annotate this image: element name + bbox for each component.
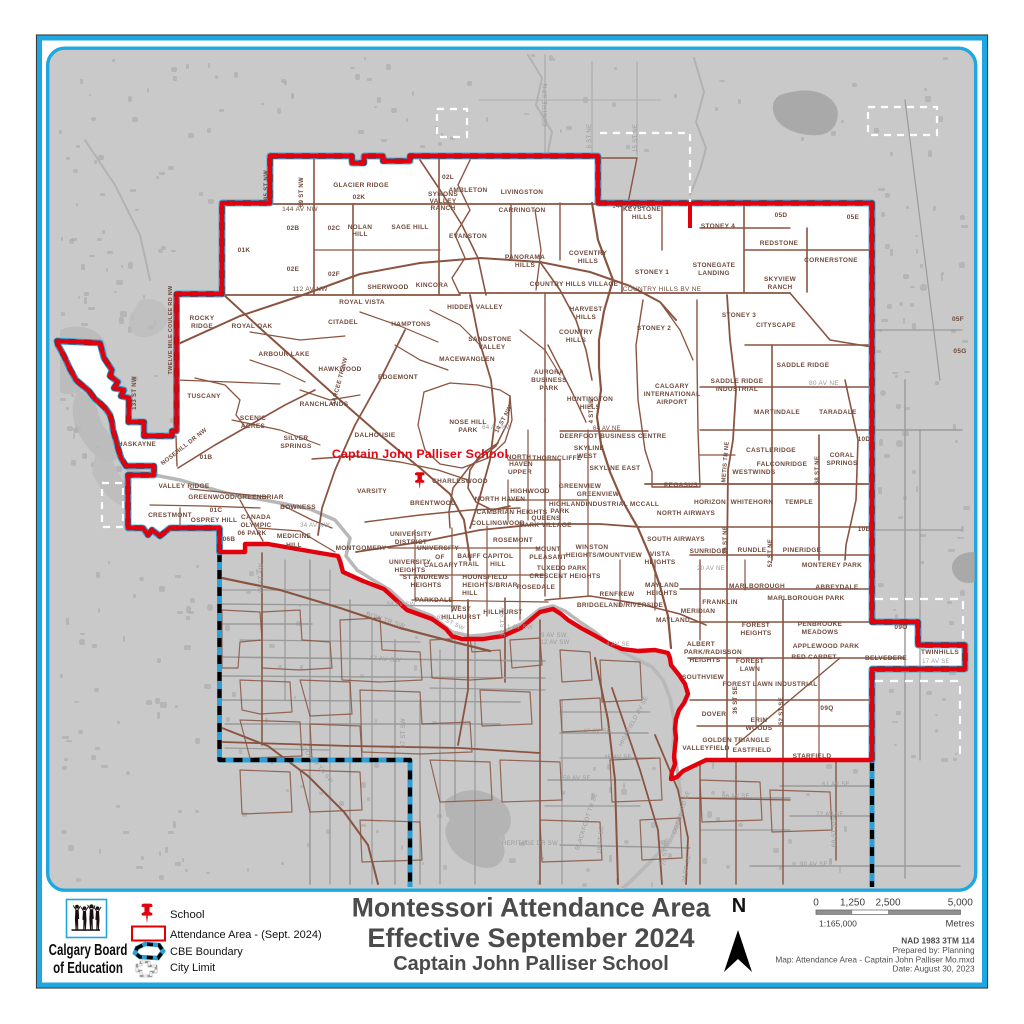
svg-text:6 ST NE: 6 ST NE xyxy=(587,124,593,149)
svg-text:TARADALE: TARADALE xyxy=(819,409,857,416)
svg-text:ROCKY: ROCKY xyxy=(190,315,215,322)
svg-text:PARKDALE: PARKDALE xyxy=(415,597,453,604)
svg-text:Effective September 2024: Effective September 2024 xyxy=(367,923,694,953)
svg-text:MACEWANGLEN: MACEWANGLEN xyxy=(439,356,495,363)
svg-text:72 AV SE: 72 AV SE xyxy=(816,812,844,818)
svg-text:VISTA: VISTA xyxy=(650,551,670,558)
svg-text:HIGHLANDINDUSTRIAL MCCALL: HIGHLANDINDUSTRIAL MCCALL xyxy=(549,501,659,508)
svg-text:Attendance Area - (Sept. 2024): Attendance Area - (Sept. 2024) xyxy=(170,929,322,941)
svg-text:HIGHWOOD: HIGHWOOD xyxy=(510,488,550,495)
svg-text:SILVER: SILVER xyxy=(284,435,309,442)
svg-text:ARBOUR LAKE: ARBOUR LAKE xyxy=(258,351,310,358)
svg-text:CARRINGTON: CARRINGTON xyxy=(499,207,546,214)
svg-text:34 AV SW: 34 AV SW xyxy=(386,602,415,608)
svg-text:QUEENS: QUEENS xyxy=(531,515,561,522)
svg-text:OF: OF xyxy=(435,554,445,561)
svg-text:85 ST NW: 85 ST NW xyxy=(264,170,270,200)
svg-text:TUXEDO PARK: TUXEDO PARK xyxy=(537,565,587,572)
svg-text:HILLS: HILLS xyxy=(632,214,653,221)
svg-text:NORTH HAVEN: NORTH HAVEN xyxy=(475,496,526,503)
svg-text:School: School xyxy=(170,909,205,921)
svg-text:CAPITOL: CAPITOL xyxy=(483,553,514,560)
svg-text:PLEASANT: PLEASANT xyxy=(529,554,566,561)
svg-text:RUNDLE: RUNDLE xyxy=(738,547,767,554)
svg-text:CBE Boundary: CBE Boundary xyxy=(170,946,243,958)
svg-text:02B: 02B xyxy=(287,225,300,232)
svg-text:ROSEMONT: ROSEMONT xyxy=(493,537,533,544)
svg-text:09Q: 09Q xyxy=(820,705,833,712)
svg-text:LANDING: LANDING xyxy=(698,270,730,277)
svg-text:Calgary Board: Calgary Board xyxy=(49,940,128,958)
svg-text:N: N xyxy=(732,895,746,917)
svg-text:10D: 10D xyxy=(858,436,871,443)
svg-text:ST ANDREWS: ST ANDREWS xyxy=(403,574,450,581)
svg-text:THORNCLIFFE: THORNCLIFFE xyxy=(532,455,582,462)
svg-text:MAYLAND: MAYLAND xyxy=(656,617,690,624)
svg-text:SCENIC: SCENIC xyxy=(240,415,266,422)
svg-text:TWINHILLS: TWINHILLS xyxy=(921,649,959,656)
svg-text:MOUNT: MOUNT xyxy=(535,546,560,553)
svg-text:STARFIELD: STARFIELD xyxy=(793,753,832,760)
svg-text:SADDLE RIDGE: SADDLE RIDGE xyxy=(777,362,830,369)
svg-text:MERIDIAN: MERIDIAN xyxy=(681,608,716,615)
svg-text:Captain John Palliser School: Captain John Palliser School xyxy=(393,953,669,975)
svg-text:TEMPLE: TEMPLE xyxy=(785,499,814,506)
svg-text:HILL: HILL xyxy=(462,590,478,597)
svg-text:HERITAGE DR SW: HERITAGE DR SW xyxy=(502,841,558,847)
svg-text:HILL: HILL xyxy=(490,561,506,568)
svg-text:MAYLAND: MAYLAND xyxy=(645,582,679,589)
svg-text:HILLS: HILLS xyxy=(515,262,536,269)
svg-text:CHARLESWOOD: CHARLESWOOD xyxy=(432,478,488,485)
svg-text:CORAL: CORAL xyxy=(830,452,855,459)
svg-text:NOLAN: NOLAN xyxy=(348,224,373,231)
svg-text:ACRES: ACRES xyxy=(241,423,266,430)
svg-text:20 AV NE: 20 AV NE xyxy=(697,566,725,572)
svg-text:WOODS: WOODS xyxy=(746,725,773,732)
svg-text:OLYMPIC: OLYMPIC xyxy=(240,522,271,529)
svg-text:VARSITY: VARSITY xyxy=(357,488,387,495)
svg-text:SOUTH AIRWAYS: SOUTH AIRWAYS xyxy=(647,536,705,543)
svg-text:INTERNATIONAL: INTERNATIONAL xyxy=(644,391,701,398)
svg-text:CITYSCAPE: CITYSCAPE xyxy=(756,322,796,329)
svg-text:RENFREW: RENFREW xyxy=(600,591,636,598)
svg-text:SOUTHVIEW: SOUTHVIEW xyxy=(682,674,725,681)
svg-text:TUSCANY: TUSCANY xyxy=(187,393,221,400)
svg-text:4 AV SE: 4 AV SE xyxy=(606,642,630,648)
svg-text:BUSINESS: BUSINESS xyxy=(531,377,567,384)
svg-text:INDUSTRIAL: INDUSTRIAL xyxy=(716,386,758,393)
svg-text:1 AV SW: 1 AV SW xyxy=(507,625,533,631)
svg-text:NORTH: NORTH xyxy=(507,454,532,461)
svg-text:06 PARK: 06 PARK xyxy=(237,530,266,537)
svg-text:PARK: PARK xyxy=(458,427,477,434)
svg-text:GLACIER RIDGE: GLACIER RIDGE xyxy=(333,182,389,189)
svg-text:KINCORA: KINCORA xyxy=(416,282,448,289)
svg-text:BOWNESS: BOWNESS xyxy=(280,504,316,511)
svg-text:UNIVERSITY: UNIVERSITY xyxy=(390,531,432,538)
svg-text:VALLEYFIELD: VALLEYFIELD xyxy=(682,745,729,752)
svg-text:LAWN: LAWN xyxy=(740,666,760,673)
svg-text:GOLDEN TRIANGLE: GOLDEN TRIANGLE xyxy=(702,737,770,744)
svg-text:CRESCENT HEIGHTS: CRESCENT HEIGHTS xyxy=(529,573,601,580)
svg-text:CASTLERIDGE: CASTLERIDGE xyxy=(746,447,796,454)
svg-text:EASTFIELD: EASTFIELD xyxy=(733,747,772,754)
svg-text:HEIGHTS: HEIGHTS xyxy=(411,582,442,589)
svg-text:COVENTRY: COVENTRY xyxy=(569,250,608,257)
svg-text:STONEY 1: STONEY 1 xyxy=(635,269,669,276)
svg-text:PINERIDGE: PINERIDGE xyxy=(783,547,822,554)
svg-text:9 AV SW: 9 AV SW xyxy=(541,633,567,639)
svg-text:FRANKLIN: FRANKLIN xyxy=(702,599,738,606)
svg-text:UNIVERSITY: UNIVERSITY xyxy=(417,545,459,552)
svg-text:HILL: HILL xyxy=(286,542,302,549)
svg-text:CORNERSTONE: CORNERSTONE xyxy=(804,257,858,264)
svg-text:HILLS: HILLS xyxy=(576,314,597,321)
svg-text:68 ST SE: 68 ST SE xyxy=(832,819,838,847)
svg-text:RANCH: RANCH xyxy=(768,284,793,291)
svg-text:PANORAMA: PANORAMA xyxy=(505,254,545,261)
svg-text:61 AV SE: 61 AV SE xyxy=(822,782,850,788)
svg-text:STONEY 3: STONEY 3 xyxy=(722,312,756,319)
svg-text:HORIZON: HORIZON xyxy=(694,499,726,506)
svg-text:RANCHLANDS: RANCHLANDS xyxy=(300,401,349,408)
svg-text:01C: 01C xyxy=(210,507,223,514)
svg-text:City Limit: City Limit xyxy=(170,962,215,974)
svg-text:37 ST SW: 37 ST SW xyxy=(501,607,507,637)
svg-text:SUNRIDGE: SUNRIDGE xyxy=(690,548,727,555)
svg-text:NOSE HILL: NOSE HILL xyxy=(449,419,486,426)
svg-text:01B: 01B xyxy=(200,454,213,461)
svg-text:Date: August 30, 2023: Date: August 30, 2023 xyxy=(892,964,974,974)
svg-text:ABBEYDALE: ABBEYDALE xyxy=(815,584,859,591)
svg-text:ROYAL OAK: ROYAL OAK xyxy=(232,323,273,330)
svg-text:STONEGATE: STONEGATE xyxy=(693,262,736,269)
svg-text:UNIVERSITY: UNIVERSITY xyxy=(389,559,431,566)
svg-text:MEADOWS: MEADOWS xyxy=(802,629,839,636)
svg-text:HEIGHTS: HEIGHTS xyxy=(395,567,426,574)
svg-text:Captain John Palliser School: Captain John Palliser School xyxy=(332,447,508,461)
svg-text:SADDLE RIDGE: SADDLE RIDGE xyxy=(711,378,764,385)
svg-text:GREENVIEW: GREENVIEW xyxy=(559,483,602,490)
svg-text:VALLEY: VALLEY xyxy=(479,344,506,351)
svg-text:1:165,000: 1:165,000 xyxy=(819,919,857,929)
svg-text:SPRINGS: SPRINGS xyxy=(280,443,312,450)
svg-text:05F: 05F xyxy=(952,316,964,323)
svg-text:05G: 05G xyxy=(953,348,966,355)
svg-text:34 AV NW: 34 AV NW xyxy=(300,523,330,529)
svg-text:HIDDEN VALLEY: HIDDEN VALLEY xyxy=(447,304,503,311)
svg-text:MARLBOROUGH: MARLBOROUGH xyxy=(729,583,785,590)
svg-text:52 ST NE: 52 ST NE xyxy=(768,539,774,567)
svg-text:CENTRE ST N: CENTRE ST N xyxy=(543,83,549,126)
svg-text:02L: 02L xyxy=(442,174,454,181)
svg-text:05E: 05E xyxy=(847,214,860,221)
svg-text:HILLS: HILLS xyxy=(578,258,599,265)
svg-text:HILL: HILL xyxy=(352,231,368,238)
svg-text:DALHOUSIE: DALHOUSIE xyxy=(355,432,396,439)
svg-text:RIDGE: RIDGE xyxy=(191,323,213,330)
svg-text:NORTH AIRWAYS: NORTH AIRWAYS xyxy=(657,510,716,517)
svg-text:58 AV SE: 58 AV SE xyxy=(563,776,591,782)
svg-text:SKYLINE EAST: SKYLINE EAST xyxy=(590,465,641,472)
svg-text:PARK: PARK xyxy=(550,508,569,515)
svg-text:Montessori Attendance Area: Montessori Attendance Area xyxy=(352,893,711,923)
svg-text:CRESTMONT: CRESTMONT xyxy=(148,512,192,519)
svg-text:EDGEMONT: EDGEMONT xyxy=(378,374,418,381)
svg-text:SKYVIEW: SKYVIEW xyxy=(764,276,797,283)
svg-text:NAD 1983 3TM 114: NAD 1983 3TM 114 xyxy=(901,936,975,946)
svg-text:02E: 02E xyxy=(287,266,300,273)
svg-text:1,250: 1,250 xyxy=(840,898,865,909)
svg-text:RED CARPET: RED CARPET xyxy=(791,654,836,661)
svg-text:GREENVIEW: GREENVIEW xyxy=(577,491,620,498)
svg-text:HAVEN: HAVEN xyxy=(509,461,533,468)
svg-text:36 ST SE: 36 ST SE xyxy=(733,686,739,714)
svg-text:COUNTRY HILLS VILLAGE: COUNTRY HILLS VILLAGE xyxy=(530,281,619,288)
svg-text:HEIGHTS: HEIGHTS xyxy=(645,559,676,566)
svg-text:HARVEST: HARVEST xyxy=(569,306,602,313)
svg-text:PARK: PARK xyxy=(539,385,558,392)
svg-text:69 ST NW: 69 ST NW xyxy=(299,177,305,207)
svg-text:BELVEDERE: BELVEDERE xyxy=(865,655,907,662)
svg-text:144 AV NE: 144 AV NE xyxy=(612,204,644,210)
svg-text:80 AV NE: 80 AV NE xyxy=(809,380,839,387)
svg-text:12 AV SW: 12 AV SW xyxy=(540,640,569,646)
svg-text:FOREST: FOREST xyxy=(736,658,764,665)
svg-text:64 AV NE: 64 AV NE xyxy=(593,426,621,432)
svg-text:BANFF: BANFF xyxy=(457,553,481,560)
svg-text:144 AV NW: 144 AV NW xyxy=(282,206,318,213)
svg-text:COUNTRY HILLS BV NE: COUNTRY HILLS BV NE xyxy=(623,286,702,293)
svg-text:10E: 10E xyxy=(858,526,871,533)
svg-text:WEST: WEST xyxy=(451,606,471,613)
svg-text:42 AV SE: 42 AV SE xyxy=(583,729,611,735)
svg-text:FOREST: FOREST xyxy=(742,622,770,629)
svg-text:WINSTON: WINSTON xyxy=(576,544,609,551)
svg-text:TRAIL: TRAIL xyxy=(459,561,480,568)
svg-text:FALCONRIDGE: FALCONRIDGE xyxy=(757,461,808,468)
svg-text:HEIGHTS: HEIGHTS xyxy=(741,630,772,637)
svg-text:133 ST NW: 133 ST NW xyxy=(132,376,138,410)
svg-text:BRENTWOOD: BRENTWOOD xyxy=(410,500,456,507)
svg-text:PARK/RADISSON: PARK/RADISSON xyxy=(684,649,742,656)
svg-text:Metres: Metres xyxy=(945,919,974,930)
svg-text:TWELVE MILE COULEE RD NW: TWELVE MILE COULEE RD NW xyxy=(168,285,174,374)
svg-text:06B: 06B xyxy=(223,536,236,543)
svg-text:ALBERT: ALBERT xyxy=(687,641,715,648)
svg-text:ROYAL VISTA: ROYAL VISTA xyxy=(339,299,385,306)
svg-text:SPRINGS: SPRINGS xyxy=(826,460,858,467)
svg-text:GREENWOOD/GREENBRIAR: GREENWOOD/GREENBRIAR xyxy=(188,494,284,501)
svg-text:90 AV SE: 90 AV SE xyxy=(800,862,828,868)
svg-text:PENBROOKE: PENBROOKE xyxy=(798,621,843,628)
svg-text:HEIGHTS/MOUNTVIEW: HEIGHTS/MOUNTVIEW xyxy=(566,552,643,559)
svg-text:WHITEHORN: WHITEHORN xyxy=(731,499,774,506)
svg-text:CITADEL: CITADEL xyxy=(328,319,358,326)
svg-text:02C: 02C xyxy=(328,225,341,232)
svg-text:PEGASUS: PEGASUS xyxy=(664,482,698,489)
svg-text:LIVINGSTON: LIVINGSTON xyxy=(501,189,544,196)
svg-text:ERIN: ERIN xyxy=(751,717,768,724)
svg-text:15 ST NE: 15 ST NE xyxy=(633,124,639,152)
svg-text:09O: 09O xyxy=(894,624,907,631)
svg-text:64 AV NW: 64 AV NW xyxy=(482,425,512,431)
svg-text:CALGARY: CALGARY xyxy=(655,383,689,390)
svg-text:HOUNSFIELD: HOUNSFIELD xyxy=(462,574,507,581)
svg-text:HEIGHTS: HEIGHTS xyxy=(690,657,721,664)
svg-text:SANDSTONE: SANDSTONE xyxy=(468,336,512,343)
svg-text:PARK VILLAGE: PARK VILLAGE xyxy=(520,522,572,529)
svg-text:66 AV SE: 66 AV SE xyxy=(722,794,750,800)
svg-text:02K: 02K xyxy=(353,194,366,201)
svg-text:0: 0 xyxy=(813,898,819,909)
svg-text:COLLINGWOOD: COLLINGWOOD xyxy=(471,520,525,527)
svg-text:AURORA: AURORA xyxy=(534,369,564,376)
svg-text:MONTEREY PARK: MONTEREY PARK xyxy=(802,562,862,569)
svg-text:SHERWOOD: SHERWOOD xyxy=(367,284,408,291)
svg-text:ROSEDALE: ROSEDALE xyxy=(517,584,556,591)
svg-text:UPPER: UPPER xyxy=(508,469,532,476)
svg-text:AIRPORT: AIRPORT xyxy=(656,399,687,406)
svg-text:of Education: of Education xyxy=(53,958,123,976)
svg-text:05D: 05D xyxy=(775,212,788,219)
svg-text:REDSTONE: REDSTONE xyxy=(760,240,799,247)
svg-text:STONEY 2: STONEY 2 xyxy=(637,325,671,332)
svg-text:DOVER: DOVER xyxy=(702,711,727,718)
svg-text:MARLBOROUGH PARK: MARLBOROUGH PARK xyxy=(767,595,844,602)
svg-text:36 ST NE: 36 ST NE xyxy=(723,526,729,554)
svg-text:17 AV SE: 17 AV SE xyxy=(922,659,950,665)
svg-text:68 ST NE: 68 ST NE xyxy=(815,456,821,484)
svg-text:85 ST SW: 85 ST SW xyxy=(259,563,265,593)
svg-text:5,000: 5,000 xyxy=(948,898,973,909)
svg-text:OSPREY HILL: OSPREY HILL xyxy=(191,517,238,524)
svg-text:BRIDGELAND/RIVERSIDE: BRIDGELAND/RIVERSIDE xyxy=(577,602,664,609)
svg-text:APPLEWOOD PARK: APPLEWOOD PARK xyxy=(793,643,860,650)
svg-text:MEDICINE: MEDICINE xyxy=(277,533,312,540)
svg-text:STONEY 4: STONEY 4 xyxy=(701,223,735,230)
svg-text:02F: 02F xyxy=(328,271,340,278)
svg-text:VALLEY RIDGE: VALLEY RIDGE xyxy=(158,483,209,490)
svg-text:HEIGHTS/BRIAR: HEIGHTS/BRIAR xyxy=(462,582,517,589)
svg-text:HEIGHTS: HEIGHTS xyxy=(647,590,678,597)
svg-text:WESTWINDS: WESTWINDS xyxy=(732,469,776,476)
svg-text:112 AV NW: 112 AV NW xyxy=(292,286,328,293)
svg-text:COUNTRY: COUNTRY xyxy=(559,329,593,336)
svg-text:SAGE HILL: SAGE HILL xyxy=(391,224,428,231)
svg-text:HAMPTONS: HAMPTONS xyxy=(391,321,431,328)
svg-text:RANCH: RANCH xyxy=(431,205,456,212)
svg-text:HASKAYNE: HASKAYNE xyxy=(118,441,157,448)
svg-text:2,500: 2,500 xyxy=(875,898,900,909)
svg-text:01K: 01K xyxy=(238,247,251,254)
svg-text:CANADA: CANADA xyxy=(241,514,271,521)
svg-text:HILLS: HILLS xyxy=(566,337,587,344)
svg-text:VALLEY: VALLEY xyxy=(430,198,457,205)
svg-text:DEERFOOT BUSINESS CENTRE: DEERFOOT BUSINESS CENTRE xyxy=(560,433,667,440)
svg-text:MONTGOMERY: MONTGOMERY xyxy=(336,545,387,552)
svg-text:37 ST SW: 37 ST SW xyxy=(401,718,407,748)
svg-text:52 ST SE: 52 ST SE xyxy=(779,697,785,725)
svg-text:MARTINDALE: MARTINDALE xyxy=(754,409,800,416)
svg-text:SKYLINE: SKYLINE xyxy=(574,445,605,452)
svg-text:45 AV SE: 45 AV SE xyxy=(604,755,632,761)
svg-text:EVANSTON: EVANSTON xyxy=(449,233,487,240)
svg-text:AMBLETON: AMBLETON xyxy=(448,187,487,194)
svg-text:4 ST NE: 4 ST NE xyxy=(589,399,595,424)
